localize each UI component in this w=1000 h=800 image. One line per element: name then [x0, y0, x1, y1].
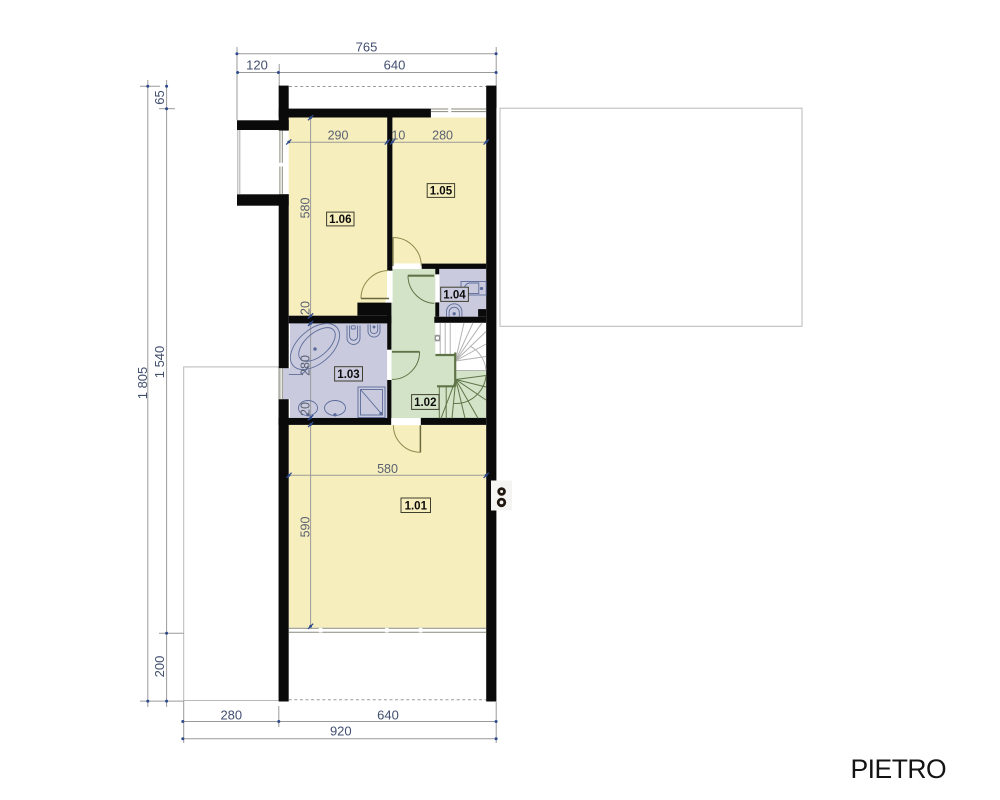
svg-text:PIETRO: PIETRO	[851, 754, 947, 784]
svg-text:640: 640	[384, 57, 406, 72]
svg-text:10: 10	[391, 129, 405, 143]
svg-text:1 540: 1 540	[152, 346, 167, 379]
svg-text:20: 20	[298, 301, 312, 315]
svg-text:280: 280	[298, 355, 312, 376]
svg-text:580: 580	[298, 198, 312, 219]
svg-text:1.03: 1.03	[337, 369, 359, 381]
svg-text:20: 20	[298, 402, 312, 416]
svg-text:580: 580	[377, 462, 398, 476]
svg-text:120: 120	[246, 57, 268, 72]
svg-text:1.05: 1.05	[430, 186, 453, 198]
svg-text:1.04: 1.04	[443, 290, 466, 302]
svg-text:1.01: 1.01	[405, 501, 428, 513]
svg-text:765: 765	[356, 39, 378, 54]
svg-text:640: 640	[377, 708, 399, 723]
svg-text:280: 280	[432, 129, 453, 143]
svg-text:65: 65	[152, 90, 167, 104]
svg-text:590: 590	[298, 517, 312, 538]
svg-text:1.06: 1.06	[329, 214, 351, 226]
svg-text:1.02: 1.02	[414, 397, 436, 409]
svg-text:1 805: 1 805	[135, 367, 150, 400]
svg-text:280: 280	[220, 708, 242, 723]
svg-text:200: 200	[152, 656, 167, 678]
svg-text:920: 920	[330, 724, 352, 739]
svg-text:290: 290	[328, 129, 349, 143]
